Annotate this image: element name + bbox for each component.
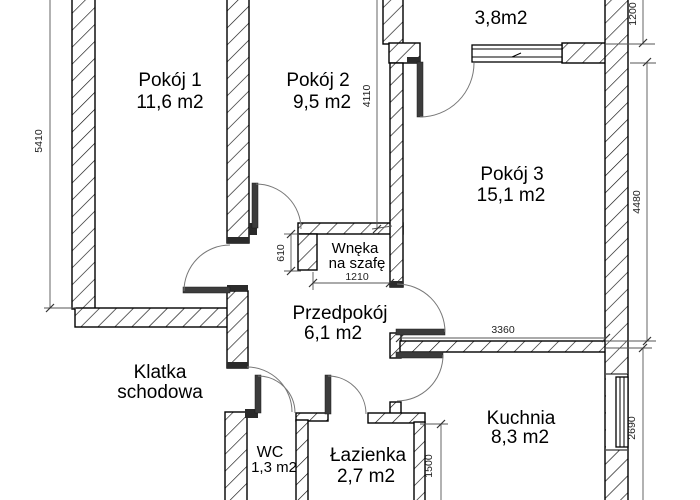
door-leaf-entrance xyxy=(255,375,261,413)
room-area-pokoj2: 9,5 m2 xyxy=(293,92,351,113)
wall-segment xyxy=(390,63,403,287)
door-leaf-pokoj2 xyxy=(252,183,258,228)
wall-segment xyxy=(383,0,403,44)
dim-label-1500: 1500 xyxy=(423,454,435,478)
room-label-przedpokoj: Przedpokój xyxy=(292,303,387,324)
door-leaf-lazienka xyxy=(325,375,331,414)
room-label-wneka-line2: na szafę xyxy=(329,255,386,272)
door-leaf-balkon xyxy=(417,62,423,117)
door-swing-arc-balkon xyxy=(420,63,474,117)
floor-plan-canvas: Pokój 1 11,6 m2 Pokój 2 9,5 m2 Pokój 3 1… xyxy=(0,0,700,500)
room-area-pokoj1: 11,6 m2 xyxy=(136,92,203,113)
room-area-przedpokoj: 6,1 m2 xyxy=(304,323,362,344)
dim-label-1200: 1200 xyxy=(627,2,639,26)
room-label-kuchnia: Kuchnia xyxy=(487,408,556,429)
door-swing-arc-kuchnia xyxy=(397,355,443,401)
door-swing-arc-wc xyxy=(258,376,295,413)
door-jamb xyxy=(227,362,248,368)
room-area-wc: 1,3 m2 xyxy=(251,459,297,476)
door-leaf-kuchnia xyxy=(396,352,443,358)
dim-label-2690: 2690 xyxy=(626,416,638,440)
room-labels: Pokój 1 11,6 m2 Pokój 2 9,5 m2 Pokój 3 1… xyxy=(117,0,556,487)
wall-segment xyxy=(400,341,607,352)
wall-segment xyxy=(72,0,95,309)
floor-plan-drawing: Pokój 1 11,6 m2 Pokój 2 9,5 m2 Pokój 3 1… xyxy=(0,0,700,500)
wall-segment xyxy=(75,308,230,327)
room-label-pokoj1: Pokój 1 xyxy=(138,70,201,91)
door-swing-arc-lazienka xyxy=(328,376,366,414)
door-jamb xyxy=(227,237,249,243)
window-frame xyxy=(472,45,562,62)
wall-segment xyxy=(298,234,317,270)
room-label-pokoj3: Pokój 3 xyxy=(480,164,543,185)
wall-segment xyxy=(227,291,248,368)
room-label-klatka-line1: Klatka xyxy=(134,362,187,383)
room-label-lazienka: Łazienka xyxy=(330,445,406,466)
dim-label-5410: 5410 xyxy=(33,129,45,153)
room-area-kuchnia: 8,3 m2 xyxy=(491,427,549,448)
dim-label-1210: 1210 xyxy=(345,271,369,283)
door-leaf-pokoj1 xyxy=(183,287,230,293)
room-area-lazienka: 2,7 m2 xyxy=(337,466,395,487)
room-area-pokoj3: 15,1 m2 xyxy=(477,185,546,206)
dim-label-4480: 4480 xyxy=(631,190,643,214)
wall-segment xyxy=(296,420,308,500)
wall-segment xyxy=(225,412,247,500)
dim-label-3360: 3360 xyxy=(491,324,515,336)
room-area-balkon: 3,8m2 xyxy=(475,8,528,29)
door-swing-arc-pokoj3 xyxy=(397,284,445,332)
kitchen-window xyxy=(606,374,628,450)
door-swing-arc-entrance xyxy=(247,367,292,412)
wall-segment xyxy=(227,0,249,243)
wall-segment xyxy=(562,43,606,63)
balcony-window xyxy=(472,45,562,62)
dim-label-610: 610 xyxy=(275,244,287,262)
room-label-balkon: Balkon xyxy=(472,0,530,3)
dim-label-4110: 4110 xyxy=(361,85,373,108)
door-swing-arc-pokoj2 xyxy=(256,184,301,229)
wall-segment xyxy=(298,223,403,234)
door-swing-arc-pokoj1 xyxy=(184,245,230,291)
room-label-pokoj2: Pokój 2 xyxy=(286,70,349,91)
room-label-klatka-line2: schodowa xyxy=(117,382,203,403)
